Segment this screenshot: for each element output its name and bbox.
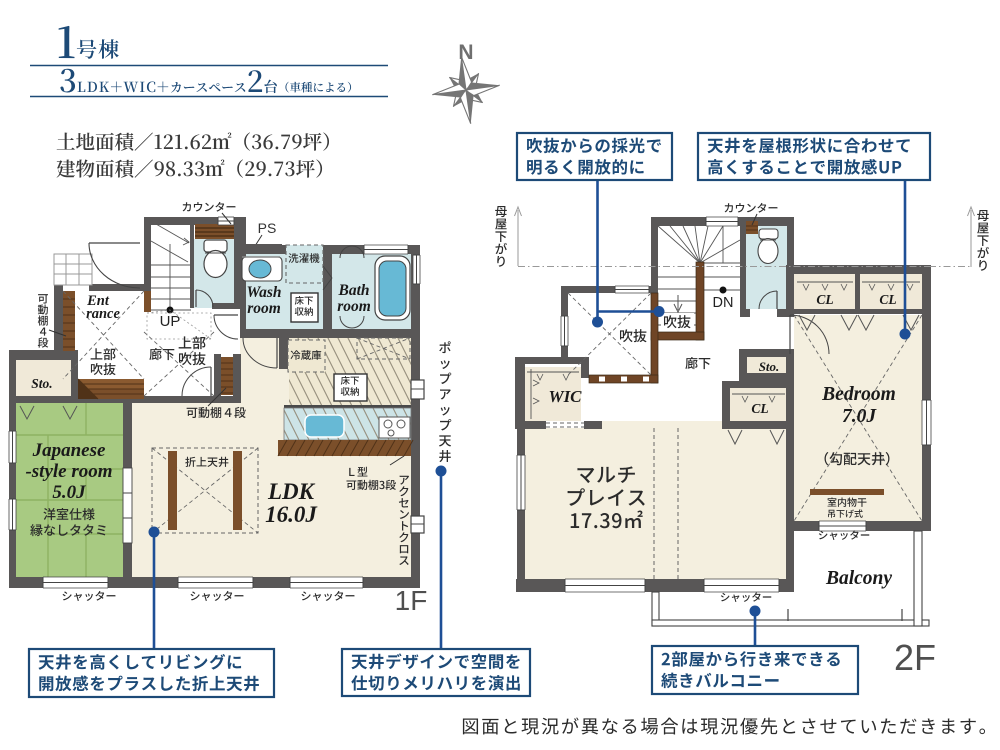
svg-text:Japanese: Japanese — [32, 440, 106, 461]
svg-text:Bath: Bath — [337, 282, 369, 299]
svg-text:1F: 1F — [395, 585, 428, 616]
svg-text:LDK: LDK — [267, 479, 316, 504]
svg-text:-style room: -style room — [25, 461, 112, 482]
svg-text:rance: rance — [86, 306, 120, 322]
svg-text:7.0J: 7.0J — [842, 406, 877, 427]
svg-text:DN: DN — [713, 295, 734, 311]
svg-text:2F: 2F — [894, 637, 936, 678]
svg-text:UP: UP — [160, 313, 181, 330]
svg-text:N: N — [458, 41, 473, 64]
svg-text:Bedroom: Bedroom — [821, 384, 896, 405]
svg-text:Wash: Wash — [246, 284, 281, 301]
svg-text:16.0J: 16.0J — [265, 502, 318, 527]
svg-text:5.0J: 5.0J — [52, 482, 86, 503]
svg-text:Balcony: Balcony — [825, 568, 892, 589]
svg-text:WIC: WIC — [548, 387, 582, 406]
svg-text:CL: CL — [751, 401, 768, 416]
svg-text:CL: CL — [816, 292, 833, 307]
svg-text:room: room — [337, 298, 371, 315]
svg-text:CL: CL — [879, 292, 896, 307]
svg-text:room: room — [247, 300, 281, 317]
svg-text:Sto.: Sto. — [759, 359, 780, 374]
svg-text:Sto.: Sto. — [31, 376, 52, 391]
svg-text:PS: PS — [258, 220, 277, 236]
